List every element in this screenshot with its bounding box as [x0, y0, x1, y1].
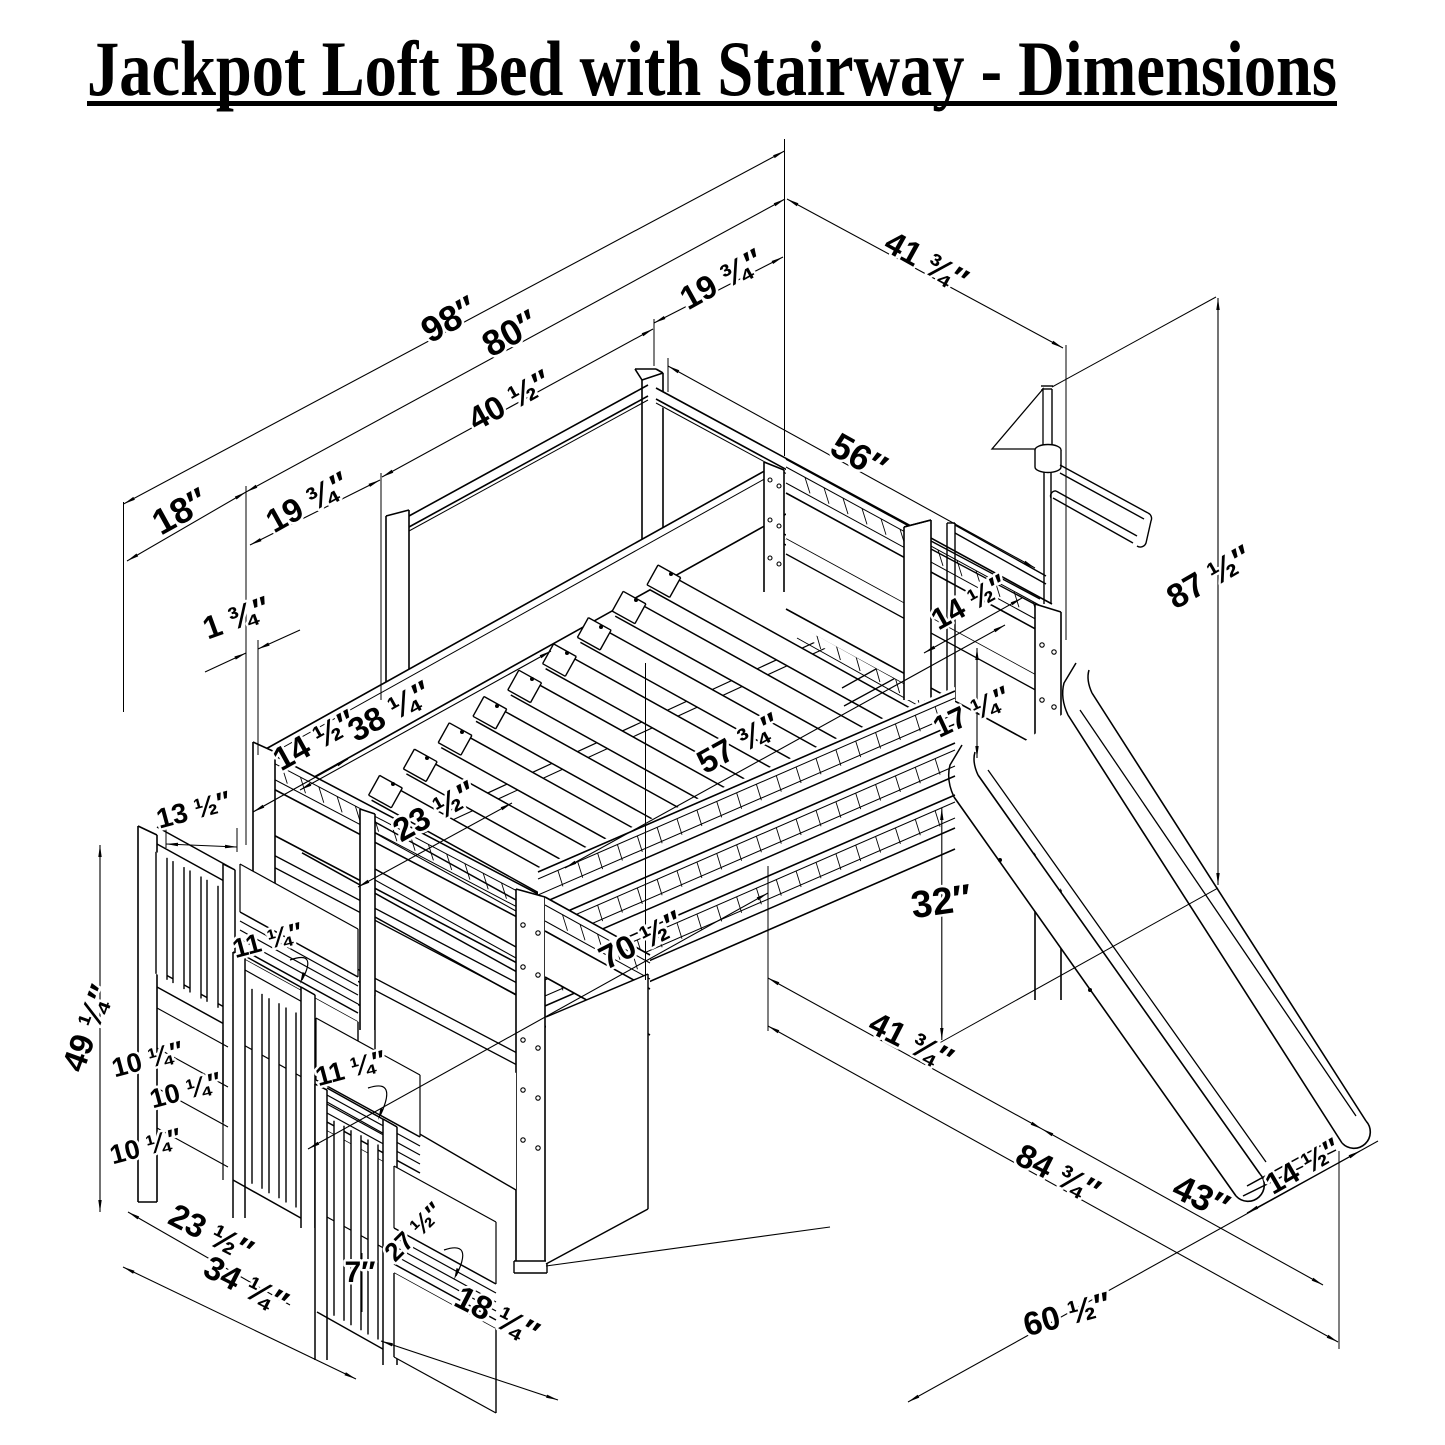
svg-text:Jackpot Loft Bed with Stairway: Jackpot Loft Bed with Stairway - Dimensi…	[87, 25, 1337, 112]
svg-text:7″: 7″	[344, 1256, 375, 1289]
svg-text:32″: 32″	[908, 877, 974, 927]
